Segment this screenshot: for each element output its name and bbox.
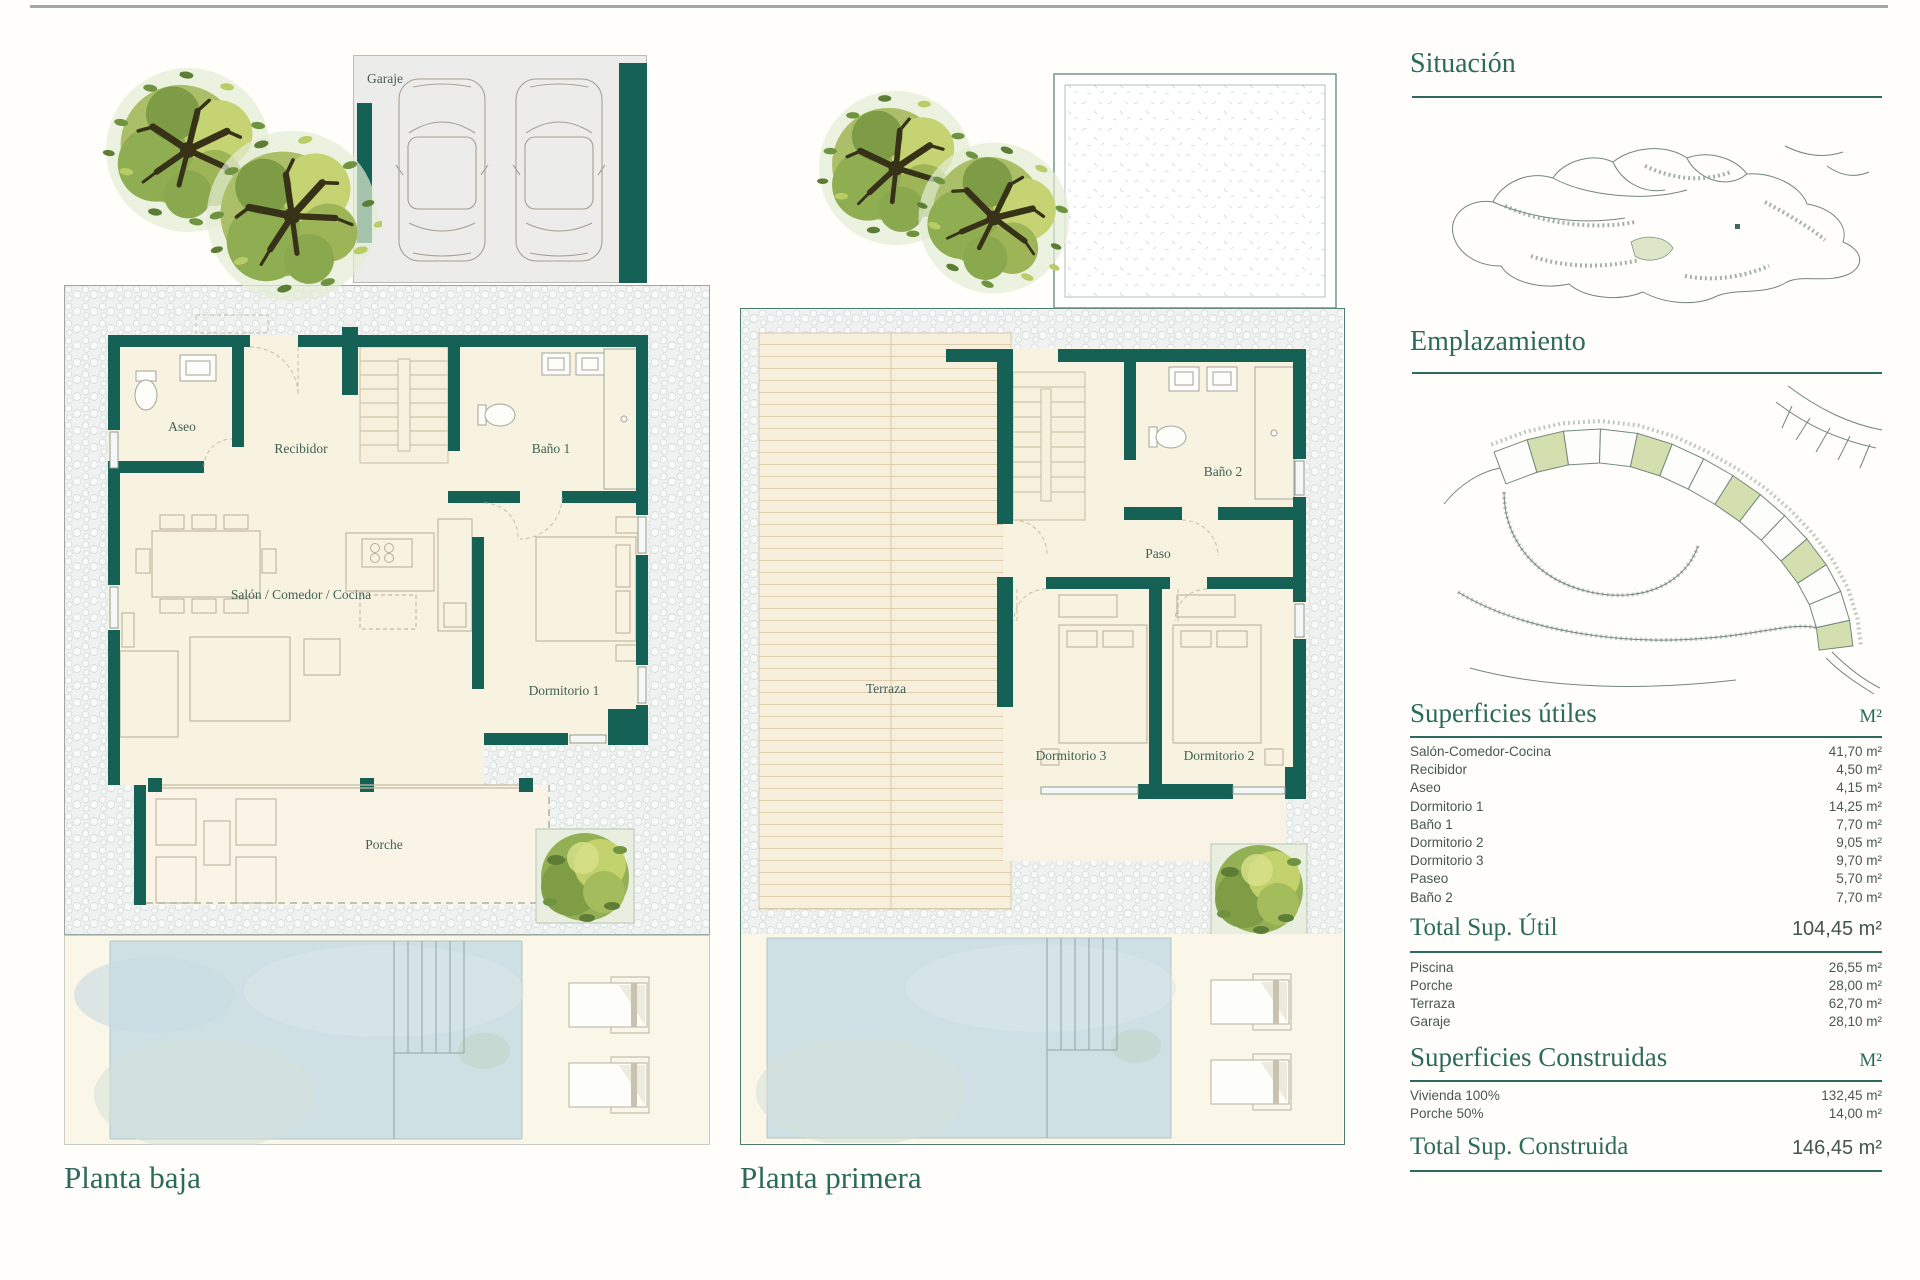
row-value: 9,05 m² <box>1836 834 1882 852</box>
row-value: 62,70 m² <box>1829 995 1882 1013</box>
table-row: Baño 17,70 m² <box>1410 816 1882 834</box>
room-label-dormitorio2: Dormitorio 2 <box>1184 748 1255 763</box>
table-row: Recibidor4,50 m² <box>1410 761 1882 779</box>
row-label: Baño 1 <box>1410 816 1453 834</box>
construidas-rows: Vivienda 100%132,45 m² Porche 50%14,00 m… <box>1410 1087 1882 1123</box>
bush-icon <box>1215 845 1303 934</box>
row-label: Dormitorio 2 <box>1410 834 1484 852</box>
situacion-title: Situación <box>1410 48 1516 80</box>
room-label-recibidor: Recibidor <box>274 441 328 456</box>
room-label-terraza: Terraza <box>866 681 906 696</box>
top-rule <box>30 5 1888 8</box>
room-label-paso: Paso <box>1145 546 1171 561</box>
table-row: Porche 50%14,00 m² <box>1410 1105 1882 1123</box>
total-construida-row: Total Sup. Construida 146,45 m² <box>1410 1129 1882 1172</box>
row-label: Garaje <box>1410 1013 1451 1031</box>
situacion-rule <box>1412 96 1882 98</box>
table-title: Superficies Construidas <box>1410 1042 1667 1073</box>
emplazamiento-map <box>1440 384 1885 696</box>
row-value: 14,25 m² <box>1829 798 1882 816</box>
row-value: 28,00 m² <box>1829 977 1882 995</box>
table-unit: M² <box>1859 1050 1882 1072</box>
staircase <box>1013 372 1085 520</box>
row-value: 28,10 m² <box>1829 1013 1882 1031</box>
total-util-row: Total Sup. Útil 104,45 m² <box>1410 910 1882 953</box>
table-row: Baño 27,70 m² <box>1410 889 1882 907</box>
planta-primera-title: Planta primera <box>740 1160 922 1196</box>
sun-lounger-icon <box>569 977 649 1033</box>
table-row: Dormitorio 39,70 m² <box>1410 852 1882 870</box>
room-label-dormitorio1: Dormitorio 1 <box>529 683 600 698</box>
pool-area-baja <box>64 935 710 1145</box>
utiles-rows: Salón-Comedor-Cocina41,70 m² Recibidor4,… <box>1410 743 1882 907</box>
pool-area-primera <box>741 934 1343 1143</box>
total-label: Total Sup. Construida <box>1410 1133 1628 1161</box>
plot <box>1564 429 1601 465</box>
row-label: Aseo <box>1410 779 1441 797</box>
terrace-deck <box>759 333 1011 909</box>
plot-band <box>1491 421 1861 650</box>
row-label: Piscina <box>1410 959 1454 977</box>
table-row: Piscina26,55 m² <box>1410 959 1882 977</box>
trees-plan-baja <box>70 48 382 306</box>
room-label-salon: Salón / Comedor / Cocina <box>231 587 371 602</box>
emplazamiento-rule <box>1412 372 1882 374</box>
room-label-aseo: Aseo <box>168 419 196 434</box>
row-label: Vivienda 100% <box>1410 1087 1500 1105</box>
table-row: Aseo4,15 m² <box>1410 779 1882 797</box>
emplazamiento-title: Emplazamiento <box>1410 326 1586 358</box>
bush-icon <box>541 833 629 922</box>
row-label: Terraza <box>1410 995 1455 1013</box>
sun-lounger-icon <box>569 1057 649 1113</box>
row-label: Dormitorio 1 <box>1410 798 1484 816</box>
table-row: Dormitorio 114,25 m² <box>1410 798 1882 816</box>
table-row: Vivienda 100%132,45 m² <box>1410 1087 1882 1105</box>
row-value: 4,50 m² <box>1836 761 1882 779</box>
table-row: Salón-Comedor-Cocina41,70 m² <box>1410 743 1882 761</box>
garage-wall <box>619 63 647 283</box>
situacion-map <box>1435 106 1885 332</box>
row-value: 7,70 m² <box>1836 889 1882 907</box>
table-row: Dormitorio 29,05 m² <box>1410 834 1882 852</box>
planta-baja-title: Planta baja <box>64 1160 201 1196</box>
table-row: Terraza62,70 m² <box>1410 995 1882 1013</box>
surface-tables: Superficies útiles M² Salón-Comedor-Coci… <box>1410 698 1882 1172</box>
row-label: Porche 50% <box>1410 1105 1484 1123</box>
row-value: 7,70 m² <box>1836 816 1882 834</box>
room-label-bano1: Baño 1 <box>532 441 571 456</box>
total-value: 104,45 m² <box>1792 918 1882 941</box>
row-value: 14,00 m² <box>1829 1105 1882 1123</box>
exterior-rows: Piscina26,55 m² Porche28,00 m² Terraza62… <box>1410 959 1882 1032</box>
row-label: Recibidor <box>1410 761 1467 779</box>
row-value: 26,55 m² <box>1829 959 1882 977</box>
lawn-square <box>1053 73 1337 309</box>
superficies-construidas-header: Superficies Construidas M² <box>1410 1042 1882 1082</box>
brochure-page: Garaje <box>0 0 1920 1280</box>
sun-lounger-icon <box>1211 1054 1291 1110</box>
trees-plan-primera <box>798 70 1084 318</box>
table-unit: M² <box>1859 706 1882 728</box>
row-label: Paseo <box>1410 870 1448 888</box>
table-title: Superficies útiles <box>1410 698 1597 729</box>
table-row: Paseo5,70 m² <box>1410 870 1882 888</box>
row-label: Porche <box>1410 977 1453 995</box>
planta-baja-floorplan: Aseo Recibidor Baño 1 Salón / Comedor / … <box>64 285 710 935</box>
room-label-bano2: Baño 2 <box>1204 464 1243 479</box>
table-row: Porche28,00 m² <box>1410 977 1882 995</box>
total-value: 146,45 m² <box>1792 1137 1882 1160</box>
total-label: Total Sup. Útil <box>1410 914 1558 942</box>
room-label-porche: Porche <box>365 837 403 852</box>
row-value: 5,70 m² <box>1836 870 1882 888</box>
superficies-utiles-header: Superficies útiles M² <box>1410 698 1882 738</box>
row-value: 9,70 m² <box>1836 852 1882 870</box>
sun-lounger-icon <box>1211 974 1291 1030</box>
row-label: Salón-Comedor-Cocina <box>1410 743 1551 761</box>
row-value: 41,70 m² <box>1829 743 1882 761</box>
row-label: Dormitorio 3 <box>1410 852 1484 870</box>
planta-primera-floorplan: Terraza Baño 2 Paso Dormitorio 3 Dormito… <box>741 309 1343 934</box>
row-label: Baño 2 <box>1410 889 1453 907</box>
garage-plan: Garaje <box>353 55 647 283</box>
planta-primera-block: Terraza Baño 2 Paso Dormitorio 3 Dormito… <box>740 308 1345 1145</box>
row-value: 4,15 m² <box>1836 779 1882 797</box>
row-value: 132,45 m² <box>1821 1087 1882 1105</box>
table-row: Garaje28,10 m² <box>1410 1013 1882 1031</box>
room-label-dormitorio3: Dormitorio 3 <box>1036 748 1107 763</box>
staircase <box>360 347 448 463</box>
